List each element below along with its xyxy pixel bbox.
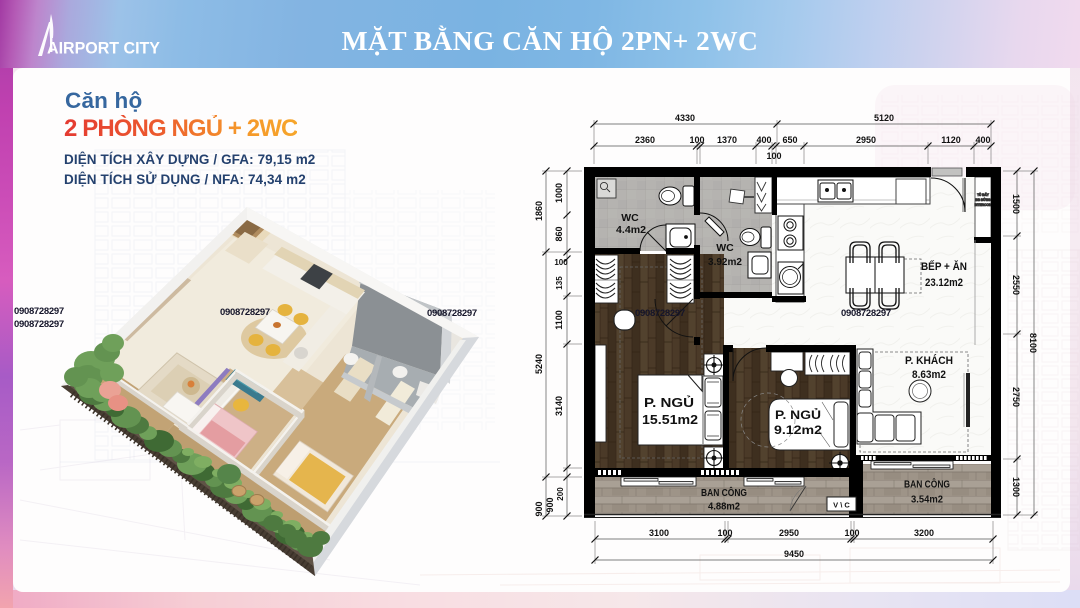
svg-text:1000: 1000 xyxy=(554,183,564,203)
svg-text:1860: 1860 xyxy=(534,201,544,221)
svg-text:5120: 5120 xyxy=(874,113,894,123)
svg-text:P. KHÁCH: P. KHÁCH xyxy=(905,354,953,367)
svg-text:2950: 2950 xyxy=(779,528,799,538)
svg-text:1300: 1300 xyxy=(1011,477,1021,497)
svg-text:8100: 8100 xyxy=(1028,333,1038,353)
svg-text:2550: 2550 xyxy=(1011,275,1021,295)
svg-text:ĐB ĐỨNG: ĐB ĐỨNG xyxy=(975,197,991,202)
svg-text:3140: 3140 xyxy=(554,396,564,416)
svg-text:1500: 1500 xyxy=(1011,194,1021,214)
svg-text:BẾP + ĂN: BẾP + ĂN xyxy=(921,260,967,273)
svg-text:4.4m2: 4.4m2 xyxy=(616,224,646,236)
svg-text:9450: 9450 xyxy=(784,549,804,559)
svg-text:3.54m2: 3.54m2 xyxy=(911,494,943,506)
svg-text:200: 200 xyxy=(556,487,565,501)
svg-text:P. NGỦ: P. NGỦ xyxy=(644,395,694,410)
svg-text:900: 900 xyxy=(534,501,544,516)
svg-text:2950: 2950 xyxy=(856,135,876,145)
svg-text:860: 860 xyxy=(554,226,564,241)
svg-text:WC: WC xyxy=(716,242,734,254)
svg-text:3100: 3100 xyxy=(649,528,669,538)
svg-text:4.88m2: 4.88m2 xyxy=(708,501,740,513)
svg-text:100: 100 xyxy=(554,258,568,267)
svg-text:23.12m2: 23.12m2 xyxy=(925,277,963,289)
svg-text:4330: 4330 xyxy=(675,113,695,123)
svg-text:3200: 3200 xyxy=(914,528,934,538)
svg-text:1370: 1370 xyxy=(717,135,737,145)
svg-text:1100: 1100 xyxy=(554,310,564,330)
svg-text:100: 100 xyxy=(766,151,781,161)
svg-text:650: 650 xyxy=(782,135,797,145)
svg-text:100: 100 xyxy=(717,528,732,538)
svg-text:400: 400 xyxy=(756,135,771,145)
svg-text:400: 400 xyxy=(975,135,990,145)
svg-text:900: 900 xyxy=(545,497,555,512)
svg-text:V \ C: V \ C xyxy=(833,501,850,510)
svg-text:AIRPORT CITY: AIRPORT CITY xyxy=(47,39,161,58)
svg-text:5240: 5240 xyxy=(534,354,544,374)
svg-text:BAN CÔNG: BAN CÔNG xyxy=(904,478,950,491)
svg-text:15.51m2: 15.51m2 xyxy=(642,413,698,427)
svg-text:BAN CÔNG: BAN CÔNG xyxy=(701,486,747,499)
svg-text:2750: 2750 xyxy=(1011,387,1021,407)
svg-text:135: 135 xyxy=(555,276,564,290)
svg-text:WC: WC xyxy=(621,212,639,224)
svg-text:9.12m2: 9.12m2 xyxy=(774,423,822,437)
svg-text:TỦ ĐẨY: TỦ ĐẨY xyxy=(977,192,990,197)
svg-text:100: 100 xyxy=(689,135,704,145)
svg-text:P. NGỦ: P. NGỦ xyxy=(775,407,821,422)
svg-text:3.92m2: 3.92m2 xyxy=(708,256,742,268)
svg-text:INTERCOM: INTERCOM xyxy=(975,203,992,207)
svg-text:2360: 2360 xyxy=(635,135,655,145)
svg-text:8.63m2: 8.63m2 xyxy=(912,369,946,381)
svg-text:1120: 1120 xyxy=(941,135,961,145)
svg-text:100: 100 xyxy=(844,528,859,538)
